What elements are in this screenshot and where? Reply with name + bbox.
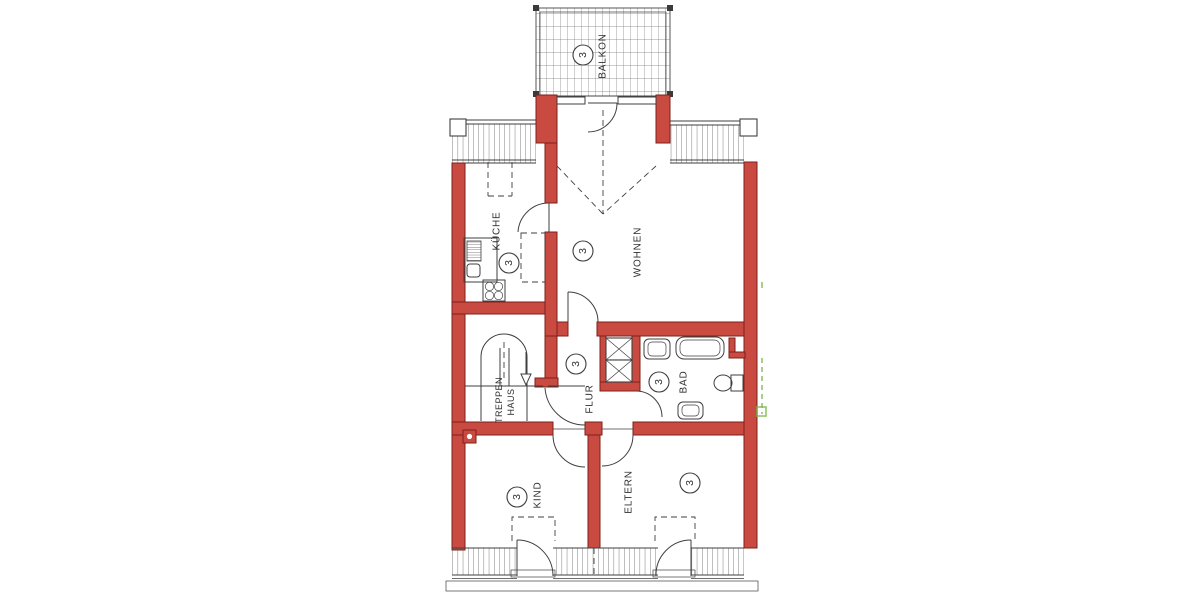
bidet-icon <box>678 402 703 419</box>
stair-direction-arrow <box>521 374 531 385</box>
eltern-door <box>602 429 633 466</box>
bad-west-wall <box>632 336 640 382</box>
wohnen-flur-door <box>568 292 598 322</box>
label-balkon: BALKON <box>598 33 609 78</box>
upper-dormer-left <box>450 119 536 163</box>
west-wall <box>452 163 465 550</box>
kitchen-east-wall-upper <box>545 143 557 203</box>
washbasin-icon <box>644 339 670 359</box>
kind-terrace-door <box>517 540 553 576</box>
upper-cabinets-dashed <box>521 233 545 282</box>
label-treppenhaus-1: TREPPEN <box>494 377 504 423</box>
roof-hatch <box>452 548 517 575</box>
kind-door <box>553 429 585 467</box>
bad-door <box>636 391 662 417</box>
label-wohnen: WOHNEN <box>633 227 644 277</box>
unit-marker-bad: 3 <box>649 372 669 392</box>
kitchen-roof-slope-dashed <box>488 162 512 196</box>
label-kind: KIND <box>533 481 544 508</box>
apartment-entry-door <box>545 386 585 425</box>
balcony-right-pillar <box>656 95 670 143</box>
bathtub-icon <box>676 337 724 359</box>
roof-hatch <box>670 125 744 163</box>
unit-marker-kueche: 3 <box>499 253 519 273</box>
shaft-bottom-wall <box>600 382 640 391</box>
cooktop-burners-icon <box>485 282 502 299</box>
green-annotation <box>757 282 766 416</box>
floor-plan: BALKON KÜCHE WOHNEN FLUR TREPPEN HAUS BA… <box>0 0 1200 600</box>
unit-marker-balkon: 3 <box>573 45 593 65</box>
bottom-dormers <box>446 517 758 591</box>
svg-text:3: 3 <box>570 361 582 367</box>
chimney <box>450 119 466 136</box>
unit-marker-eltern: 3 <box>680 473 700 493</box>
eltern-dormer-dashed <box>655 517 695 541</box>
kitchen-sink-icon <box>467 264 480 277</box>
kind-door-threshold <box>511 570 555 577</box>
eltern-door-threshold <box>653 570 695 577</box>
svg-text:3: 3 <box>511 494 523 500</box>
unit-marker-kind: 3 <box>507 487 527 507</box>
bad-corner-niche-h <box>729 352 745 358</box>
svg-text:3: 3 <box>577 248 589 254</box>
label-flur: FLUR <box>585 384 596 413</box>
east-wall <box>744 162 757 548</box>
center-door-pillar <box>585 422 602 435</box>
upper-dormer-right <box>670 119 757 163</box>
label-eltern: ELTERN <box>624 470 635 514</box>
balcony-door <box>588 103 617 132</box>
eltern-terrace-door <box>656 540 691 576</box>
label-kueche: KÜCHE <box>491 211 503 250</box>
unit-marker-wohnen: 3 <box>573 241 593 261</box>
chimney <box>740 119 757 136</box>
kind-corner-post-dot <box>467 434 472 439</box>
label-bad: BAD <box>679 371 690 394</box>
svg-text:3: 3 <box>577 52 589 58</box>
label-treppenhaus-2: HAUS <box>506 388 516 415</box>
wohnen-south-wall-stub <box>557 322 568 336</box>
kitchen-south-wall <box>452 302 545 314</box>
unit-marker-flur: 3 <box>566 354 586 374</box>
stove-icon <box>467 241 481 261</box>
kitchen-east-wall-lower <box>545 232 557 336</box>
kind-dormer-dashed <box>512 517 555 541</box>
wohnen-bad-north-wall <box>597 322 744 336</box>
bad-south-wall <box>633 422 744 435</box>
svg-text:3: 3 <box>653 379 665 385</box>
terrace-slab-edge <box>446 581 758 591</box>
kitchen-fixtures <box>464 162 545 301</box>
balcony-left-pillar <box>536 95 557 143</box>
kitchen-door <box>518 203 549 232</box>
svg-text:3: 3 <box>503 260 515 266</box>
roof-hatch <box>553 548 658 575</box>
stairs-icon <box>465 334 543 421</box>
svg-text:3: 3 <box>684 480 696 486</box>
toilet-icon <box>714 375 743 391</box>
kind-eltern-divider-wall <box>588 435 600 548</box>
roof-hatch <box>691 548 744 575</box>
shaft-icon <box>606 338 632 382</box>
